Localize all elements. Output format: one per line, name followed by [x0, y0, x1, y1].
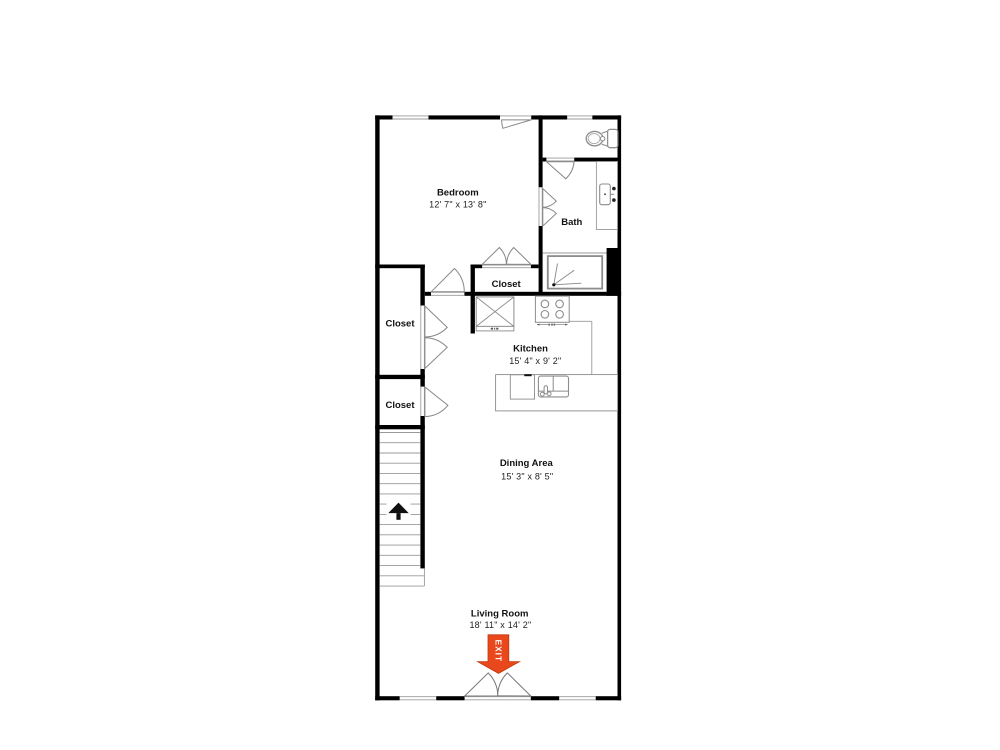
svg-text:Closet: Closet	[492, 279, 522, 290]
svg-text:Dining Area: Dining Area	[500, 458, 554, 469]
svg-text:Kitchen: Kitchen	[513, 344, 548, 355]
svg-text:Bedroom: Bedroom	[437, 187, 479, 198]
svg-text:15' 3" x 8' 5": 15' 3" x 8' 5"	[501, 472, 553, 482]
svg-text:Living Room: Living Room	[471, 608, 529, 619]
svg-text:Bath: Bath	[561, 217, 582, 228]
svg-text:15' 4" x 9' 2": 15' 4" x 9' 2"	[509, 356, 561, 366]
svg-text:12' 7" x 13' 8": 12' 7" x 13' 8"	[429, 200, 486, 210]
svg-text:Closet: Closet	[385, 319, 415, 330]
svg-text:18' 11" x 14' 2": 18' 11" x 14' 2"	[469, 620, 531, 630]
svg-text:EXIT: EXIT	[493, 639, 503, 662]
svg-text:Closet: Closet	[385, 400, 415, 411]
